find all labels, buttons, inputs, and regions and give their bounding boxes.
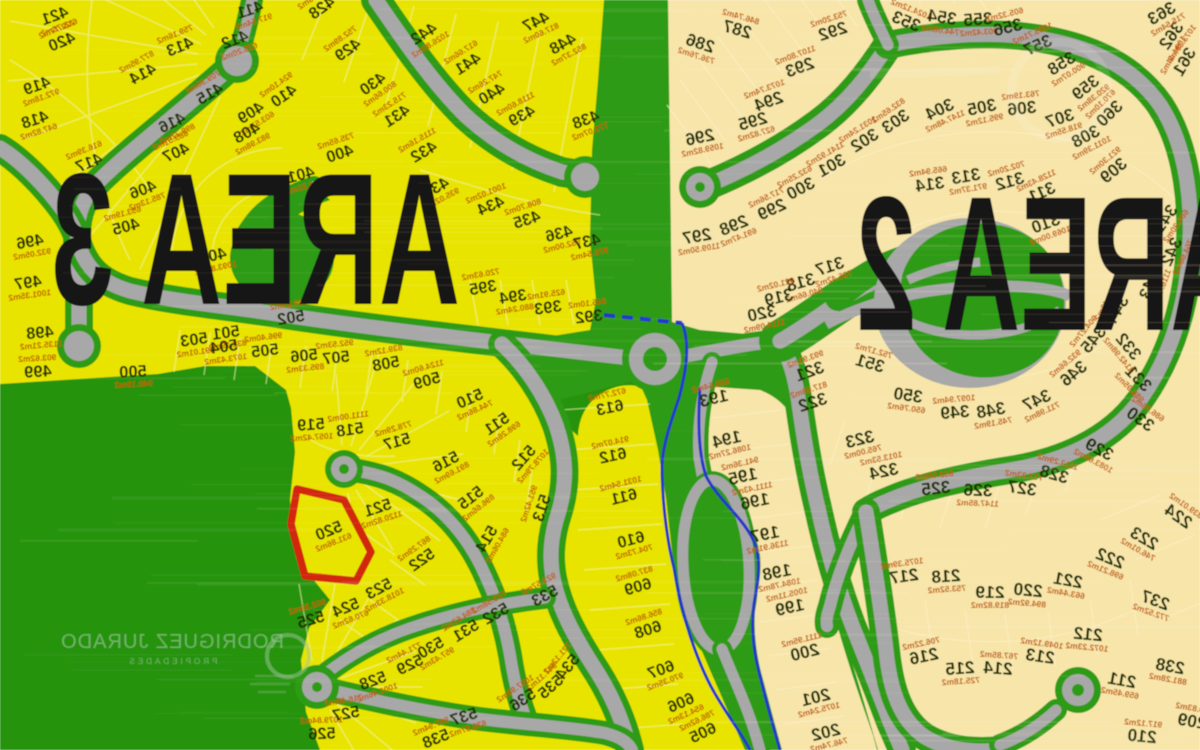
svg-text:219: 219 [975,582,1004,602]
svg-text:903.62m2: 903.62m2 [18,352,57,364]
svg-text:819.82m2: 819.82m2 [971,600,1010,610]
svg-text:392: 392 [574,306,604,327]
svg-text:PROPIEDADES: PROPIEDADES [127,657,218,666]
svg-text:940.19m2: 940.19m2 [114,378,153,390]
svg-text:526: 526 [308,725,336,744]
svg-text:RODRIGUEZ JURADO: RODRIGUEZ JURADO [60,631,284,653]
svg-text:518: 518 [335,419,365,441]
svg-text:1147.85m2: 1147.85m2 [956,497,999,508]
svg-text:499: 499 [24,362,52,381]
svg-text:AREA 3: AREA 3 [51,134,460,344]
svg-text:393: 393 [533,297,563,319]
